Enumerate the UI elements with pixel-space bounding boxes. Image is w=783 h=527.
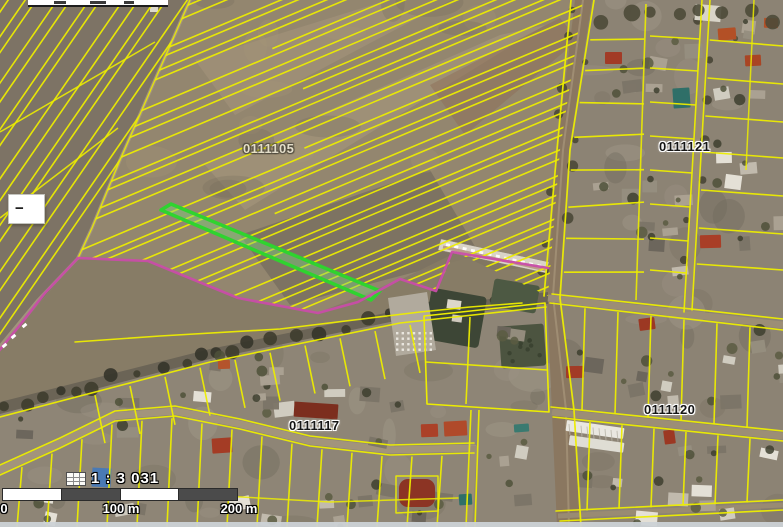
scale-bar-segment xyxy=(178,489,237,500)
clipped-label-text xyxy=(124,1,134,4)
scale-bar-label-end: 200 m xyxy=(221,501,258,516)
map-scale-icon xyxy=(66,472,86,486)
map-viewport[interactable]: − 0111105 0111121 0111120 0111117 1 : 3 … xyxy=(0,0,783,527)
window-bottom-edge xyxy=(0,522,783,527)
satellite-basemap xyxy=(0,0,783,527)
field-sector-label: 0111105 xyxy=(243,141,294,156)
minus-icon: − xyxy=(15,206,24,212)
scale-bar-segment xyxy=(61,489,120,500)
scale-ratio-indicator: 1 : 3 031 xyxy=(66,470,159,487)
clipped-label-text xyxy=(90,1,106,4)
parcel-label-ne: 0111121 xyxy=(659,139,710,154)
scale-ratio-text: 1 : 3 031 xyxy=(91,470,159,487)
scale-bar-label-start: 0 xyxy=(0,501,7,516)
scale-bar-label-middle: 100 m xyxy=(103,501,140,516)
scale-bar-segment xyxy=(3,489,61,500)
collapse-control[interactable]: − xyxy=(8,194,45,224)
parcel-label-se: 0111120 xyxy=(644,402,695,417)
parcel-label-south: 0111117 xyxy=(289,418,340,433)
scale-bar xyxy=(2,488,238,501)
clipped-label-text xyxy=(54,1,66,4)
scale-bar-segment xyxy=(120,489,179,500)
clipped-top-label xyxy=(28,0,168,7)
